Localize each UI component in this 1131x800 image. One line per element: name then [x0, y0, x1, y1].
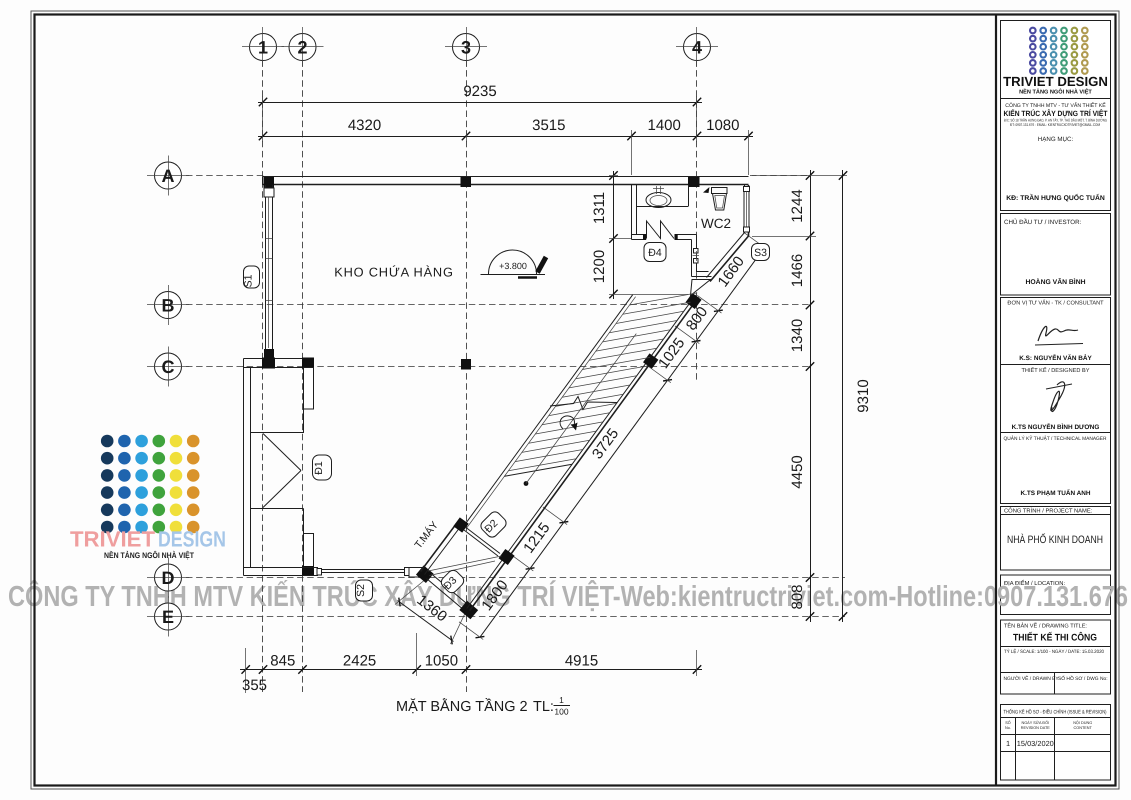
svg-text:4320: 4320 — [348, 117, 381, 134]
svg-text:+3.800: +3.800 — [499, 261, 527, 271]
svg-text:1080: 1080 — [706, 117, 739, 134]
svg-text:THIẾT KẾ THI CÔNG: THIẾT KẾ THI CÔNG — [1013, 632, 1097, 644]
svg-text:ĐƠN VỊ TƯ VẤN - TK / CONSULTAN: ĐƠN VỊ TƯ VẤN - TK / CONSULTANT — [1007, 299, 1104, 307]
svg-text:1: 1 — [559, 695, 564, 705]
svg-text:CHỦ ĐẦU TƯ / INVESTOR:: CHỦ ĐẦU TƯ / INVESTOR: — [1004, 218, 1082, 226]
svg-text:4450: 4450 — [789, 455, 806, 488]
svg-text:4915: 4915 — [565, 653, 598, 670]
svg-text:C: C — [162, 357, 175, 377]
svg-text:E: E — [162, 607, 174, 627]
svg-text:NGÀY SỬA ĐỔI: NGÀY SỬA ĐỔI — [1021, 720, 1049, 725]
svg-text:K.S: NGUYỄN VĂN BẢY: K.S: NGUYỄN VĂN BẢY — [1019, 354, 1092, 362]
svg-text:S2: S2 — [355, 584, 367, 597]
svg-text:SỐ: SỐ — [1005, 720, 1011, 725]
svg-text:WC2: WC2 — [701, 216, 731, 231]
svg-text:TRIVIET: TRIVIET — [70, 527, 156, 552]
svg-text:KHO CHỨA HÀNG: KHO CHỨA HÀNG — [334, 265, 453, 280]
svg-text:1311: 1311 — [591, 192, 608, 224]
svg-text:QUẢN LÝ KỸ THUẬT / TECHNICAL M: QUẢN LÝ KỸ THUẬT / TECHNICAL MANAGER — [1004, 435, 1107, 442]
svg-text:CÔNG TRÌNH / PROJECT NAME:: CÔNG TRÌNH / PROJECT NAME: — [1004, 507, 1093, 515]
svg-text:808: 808 — [789, 584, 806, 609]
svg-text:KIẾN TRÚC XÂY DỰNG TRÍ VIỆT: KIẾN TRÚC XÂY DỰNG TRÍ VIỆT — [1004, 109, 1108, 118]
svg-text:4: 4 — [692, 38, 702, 58]
svg-text:HOÀNG VĂN BÌNH: HOÀNG VĂN BÌNH — [1025, 277, 1085, 286]
svg-text:NHÀ PHỐ KINH DOANH: NHÀ PHỐ KINH DOANH — [1007, 533, 1103, 546]
svg-text:TRIVIET DESIGN: TRIVIET DESIGN — [1003, 74, 1108, 89]
svg-text:KĐ: TRẦN HƯNG QUỐC TUẤN: KĐ: TRẦN HƯNG QUỐC TUẤN — [1006, 193, 1105, 202]
svg-text:TL:: TL: — [533, 699, 554, 715]
svg-text:ĐT: 0907.131.676 - EMAIL: KIEN: ĐT: 0907.131.676 - EMAIL: KIENTRUCXDTRIV… — [1010, 123, 1100, 127]
svg-text:3: 3 — [461, 38, 471, 58]
svg-text:1466: 1466 — [789, 254, 806, 287]
svg-text:CONTENT: CONTENT — [1074, 726, 1093, 730]
svg-text:A: A — [162, 166, 175, 186]
svg-text:TÊN BẢN VẼ / DRAWING TITLE:: TÊN BẢN VẼ / DRAWING TITLE: — [1004, 622, 1087, 630]
svg-text:TỶ LỆ / SCALE: 1/100 - NGÀY: TỶ LỆ / SCALE: 1/100 - NGÀY / DATE: 15.0… — [1004, 648, 1104, 655]
svg-text:K.TS NGUYỄN BÌNH DƯƠNG: K.TS NGUYỄN BÌNH DƯƠNG — [1012, 423, 1100, 431]
svg-text:NỀN TẢNG NGÔI NHÀ VIỆT: NỀN TẢNG NGÔI NHÀ VIỆT — [1019, 88, 1092, 96]
svg-text:100: 100 — [554, 707, 568, 717]
svg-text:2: 2 — [297, 38, 307, 58]
svg-text:845: 845 — [270, 653, 295, 670]
svg-text:MẶT BẰNG TẦNG 2: MẶT BẰNG TẦNG 2 — [396, 698, 528, 715]
svg-text:3515: 3515 — [532, 117, 565, 134]
svg-text:B: B — [162, 296, 175, 316]
svg-text:Đ/C: SỐ 18 TRẦN HƯNG ĐẠO, P. A: Đ/C: SỐ 18 TRẦN HƯNG ĐẠO, P. AN TÂY, TP.… — [1004, 118, 1107, 123]
svg-text:SỐ HỒ SƠ / DWG No:: SỐ HỒ SƠ / DWG No: — [1058, 675, 1108, 682]
svg-text:D: D — [162, 568, 175, 588]
svg-text:15/03/2020: 15/03/2020 — [1017, 739, 1054, 748]
svg-text:2425: 2425 — [343, 653, 376, 670]
svg-text:NỘI DUNG: NỘI DUNG — [1073, 720, 1092, 725]
svg-text:HẠNG MỤC:: HẠNG MỤC: — [1038, 136, 1074, 143]
svg-text:Đ1: Đ1 — [313, 461, 325, 475]
svg-text:1340: 1340 — [789, 319, 806, 352]
svg-text:THIẾT KẾ / DESIGNED BY: THIẾT KẾ / DESIGNED BY — [1022, 366, 1090, 374]
svg-text:THỐNG KÊ HỒ SƠ - ĐIỀU CHỈNH (I: THỐNG KÊ HỒ SƠ - ĐIỀU CHỈNH (ISSUE & REV… — [1004, 709, 1107, 716]
svg-text:REVISION DATE: REVISION DATE — [1021, 726, 1051, 730]
svg-text:1: 1 — [258, 38, 268, 58]
svg-text:355: 355 — [242, 677, 267, 694]
svg-text:NGƯỜI VẼ / DRAWN BY:: NGƯỜI VẼ / DRAWN BY: — [1004, 675, 1060, 682]
svg-text:1: 1 — [1006, 739, 1010, 748]
svg-text:Đ4: Đ4 — [648, 247, 662, 259]
svg-text:CÔNG TY TNHH MTV - TƯ VẤN THIẾ: CÔNG TY TNHH MTV - TƯ VẤN THIẾT KẾ — [1005, 102, 1106, 109]
svg-text:NỀN TẢNG NGÔI NHÀ VIỆT: NỀN TẢNG NGÔI NHÀ VIỆT — [104, 550, 194, 560]
svg-text:1050: 1050 — [425, 653, 458, 670]
svg-text:K.TS PHẠM TUẤN ANH: K.TS PHẠM TUẤN ANH — [1020, 489, 1090, 497]
svg-text:DESIGN: DESIGN — [158, 527, 226, 552]
svg-text:1200: 1200 — [591, 250, 608, 283]
svg-text:S3: S3 — [754, 247, 767, 259]
svg-text:S1: S1 — [243, 274, 255, 287]
svg-text:9235: 9235 — [463, 83, 496, 100]
svg-text:1400: 1400 — [648, 117, 681, 134]
svg-text:No.: No. — [1005, 726, 1011, 730]
svg-text:1244: 1244 — [789, 189, 806, 222]
svg-text:9310: 9310 — [855, 379, 872, 412]
